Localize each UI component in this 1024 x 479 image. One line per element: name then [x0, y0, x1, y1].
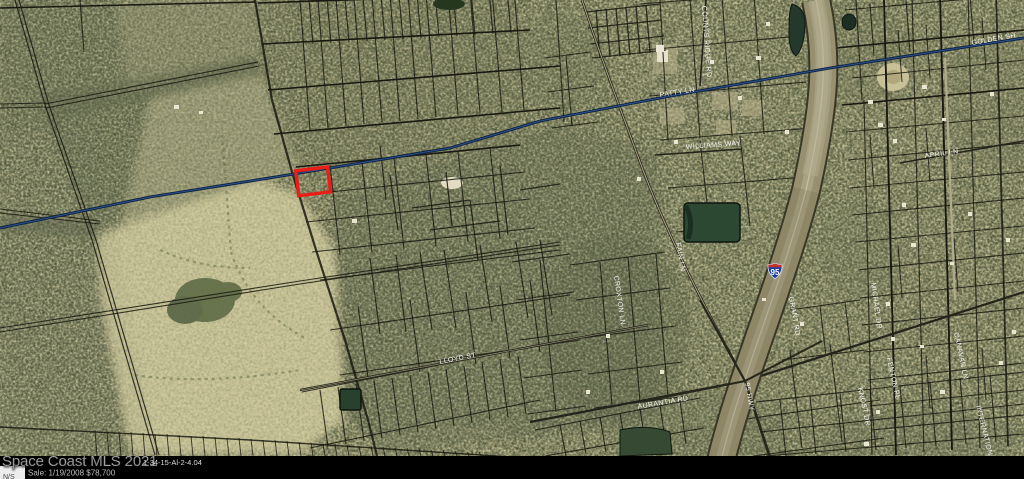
- svg-text:Sale: 1/19/2008 $78,700: Sale: 1/19/2008 $78,700: [28, 469, 116, 478]
- svg-text:N/S: N/S: [3, 474, 15, 479]
- svg-text:95: 95: [771, 268, 780, 277]
- svg-text:Space Coast MLS 2021: Space Coast MLS 2021: [2, 453, 157, 470]
- svg-text:1-34-15-Al-2-4.04: 1-34-15-Al-2-4.04: [143, 458, 202, 467]
